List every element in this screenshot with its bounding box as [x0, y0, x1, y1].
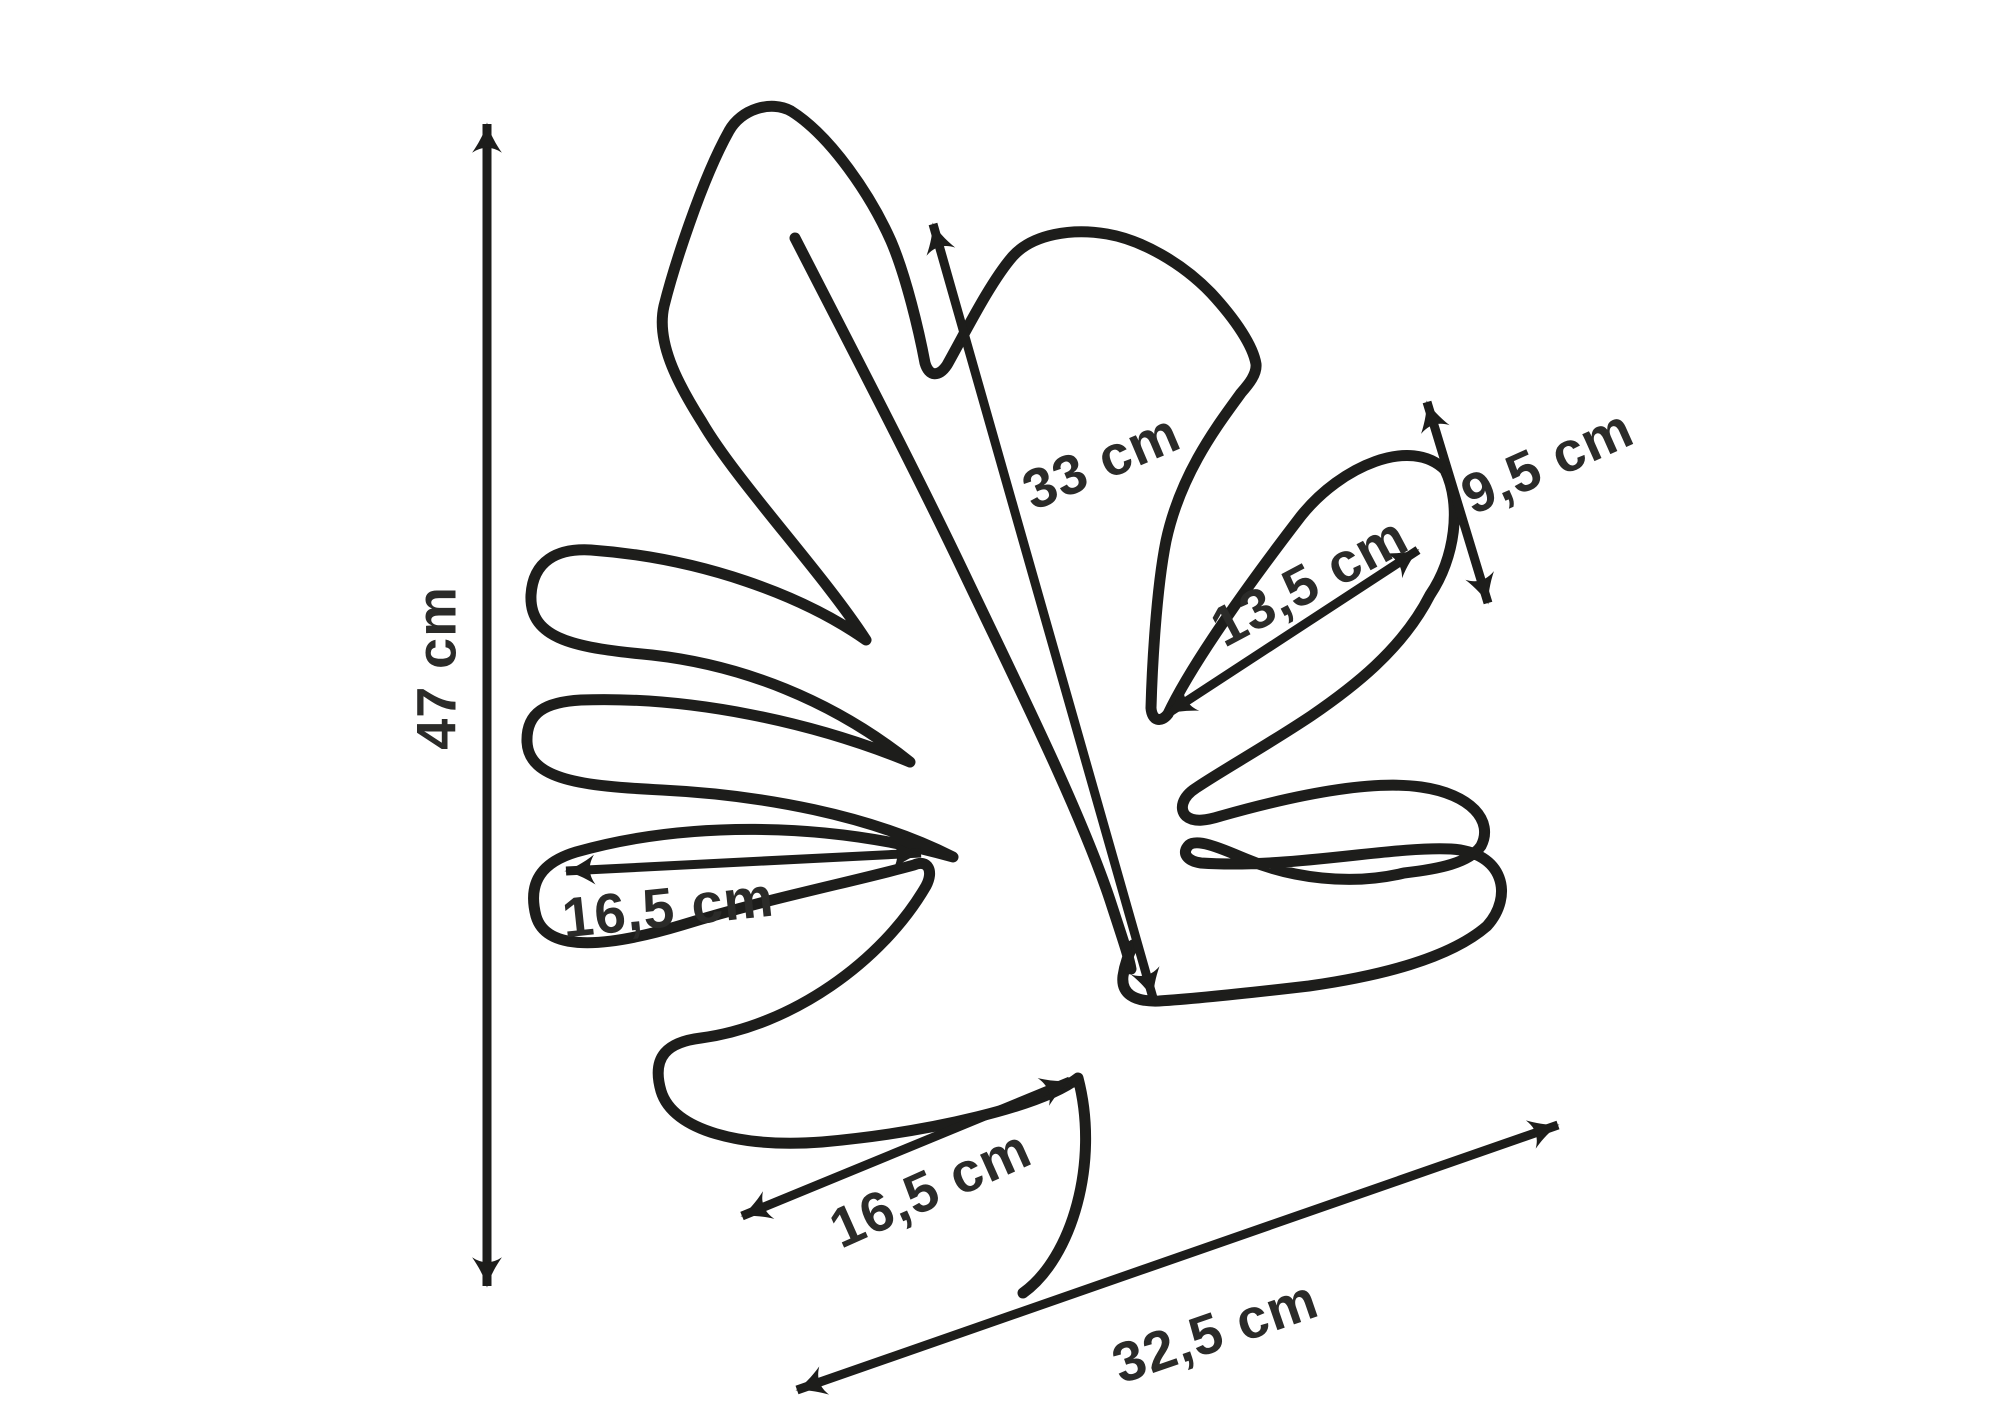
- dim-label-overall-height: 47 cm: [404, 586, 469, 750]
- dim-arrow-center-vein: [933, 224, 1153, 998]
- pattern-canvas: 47 cm 33 cm 9,5 cm 13,5 cm 16,5 cm 16,5 …: [0, 0, 2000, 1414]
- leaf-pattern-drawing: [0, 0, 2000, 1414]
